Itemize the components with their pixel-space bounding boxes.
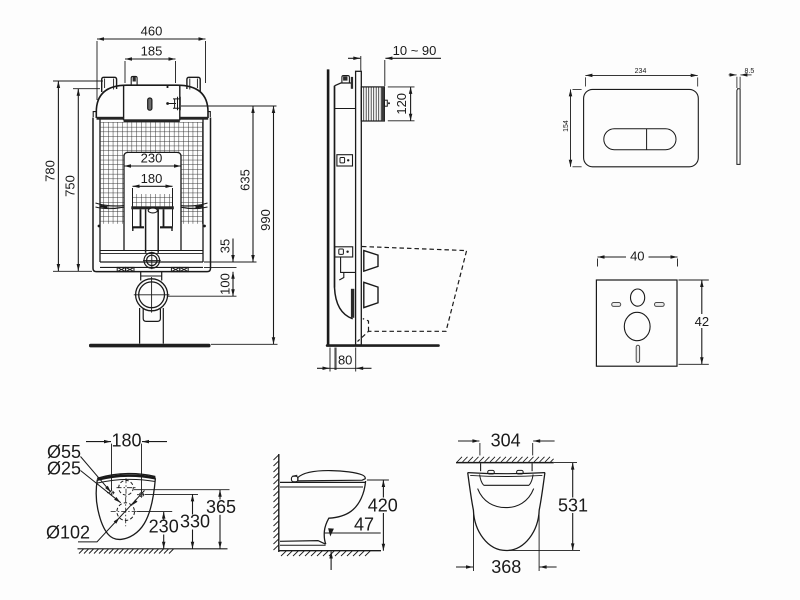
svg-text:40: 40 [630, 249, 644, 264]
svg-text:42: 42 [695, 314, 709, 329]
svg-text:154: 154 [563, 120, 570, 132]
svg-text:365: 365 [206, 497, 236, 517]
svg-text:47: 47 [354, 515, 374, 535]
svg-text:120: 120 [394, 93, 409, 115]
svg-text:Ø102: Ø102 [46, 523, 90, 543]
svg-text:304: 304 [491, 431, 521, 451]
svg-text:230: 230 [141, 151, 163, 166]
svg-text:420: 420 [368, 496, 398, 516]
svg-text:10 ~ 90: 10 ~ 90 [393, 43, 437, 58]
svg-text:8.5: 8.5 [745, 68, 755, 75]
svg-text:460: 460 [141, 24, 163, 39]
svg-text:35: 35 [218, 239, 233, 253]
svg-text:180: 180 [141, 171, 163, 186]
svg-text:990: 990 [258, 209, 273, 231]
svg-text:750: 750 [63, 175, 78, 197]
svg-text:180: 180 [111, 430, 141, 450]
svg-text:780: 780 [43, 160, 58, 182]
svg-text:531: 531 [558, 496, 588, 516]
svg-text:100: 100 [218, 273, 233, 295]
svg-text:Ø25: Ø25 [47, 459, 81, 479]
svg-text:185: 185 [141, 44, 163, 59]
svg-text:635: 635 [238, 169, 253, 191]
svg-text:234: 234 [635, 68, 647, 75]
svg-text:230: 230 [149, 517, 179, 537]
svg-text:80: 80 [338, 353, 352, 368]
svg-text:368: 368 [491, 557, 521, 577]
